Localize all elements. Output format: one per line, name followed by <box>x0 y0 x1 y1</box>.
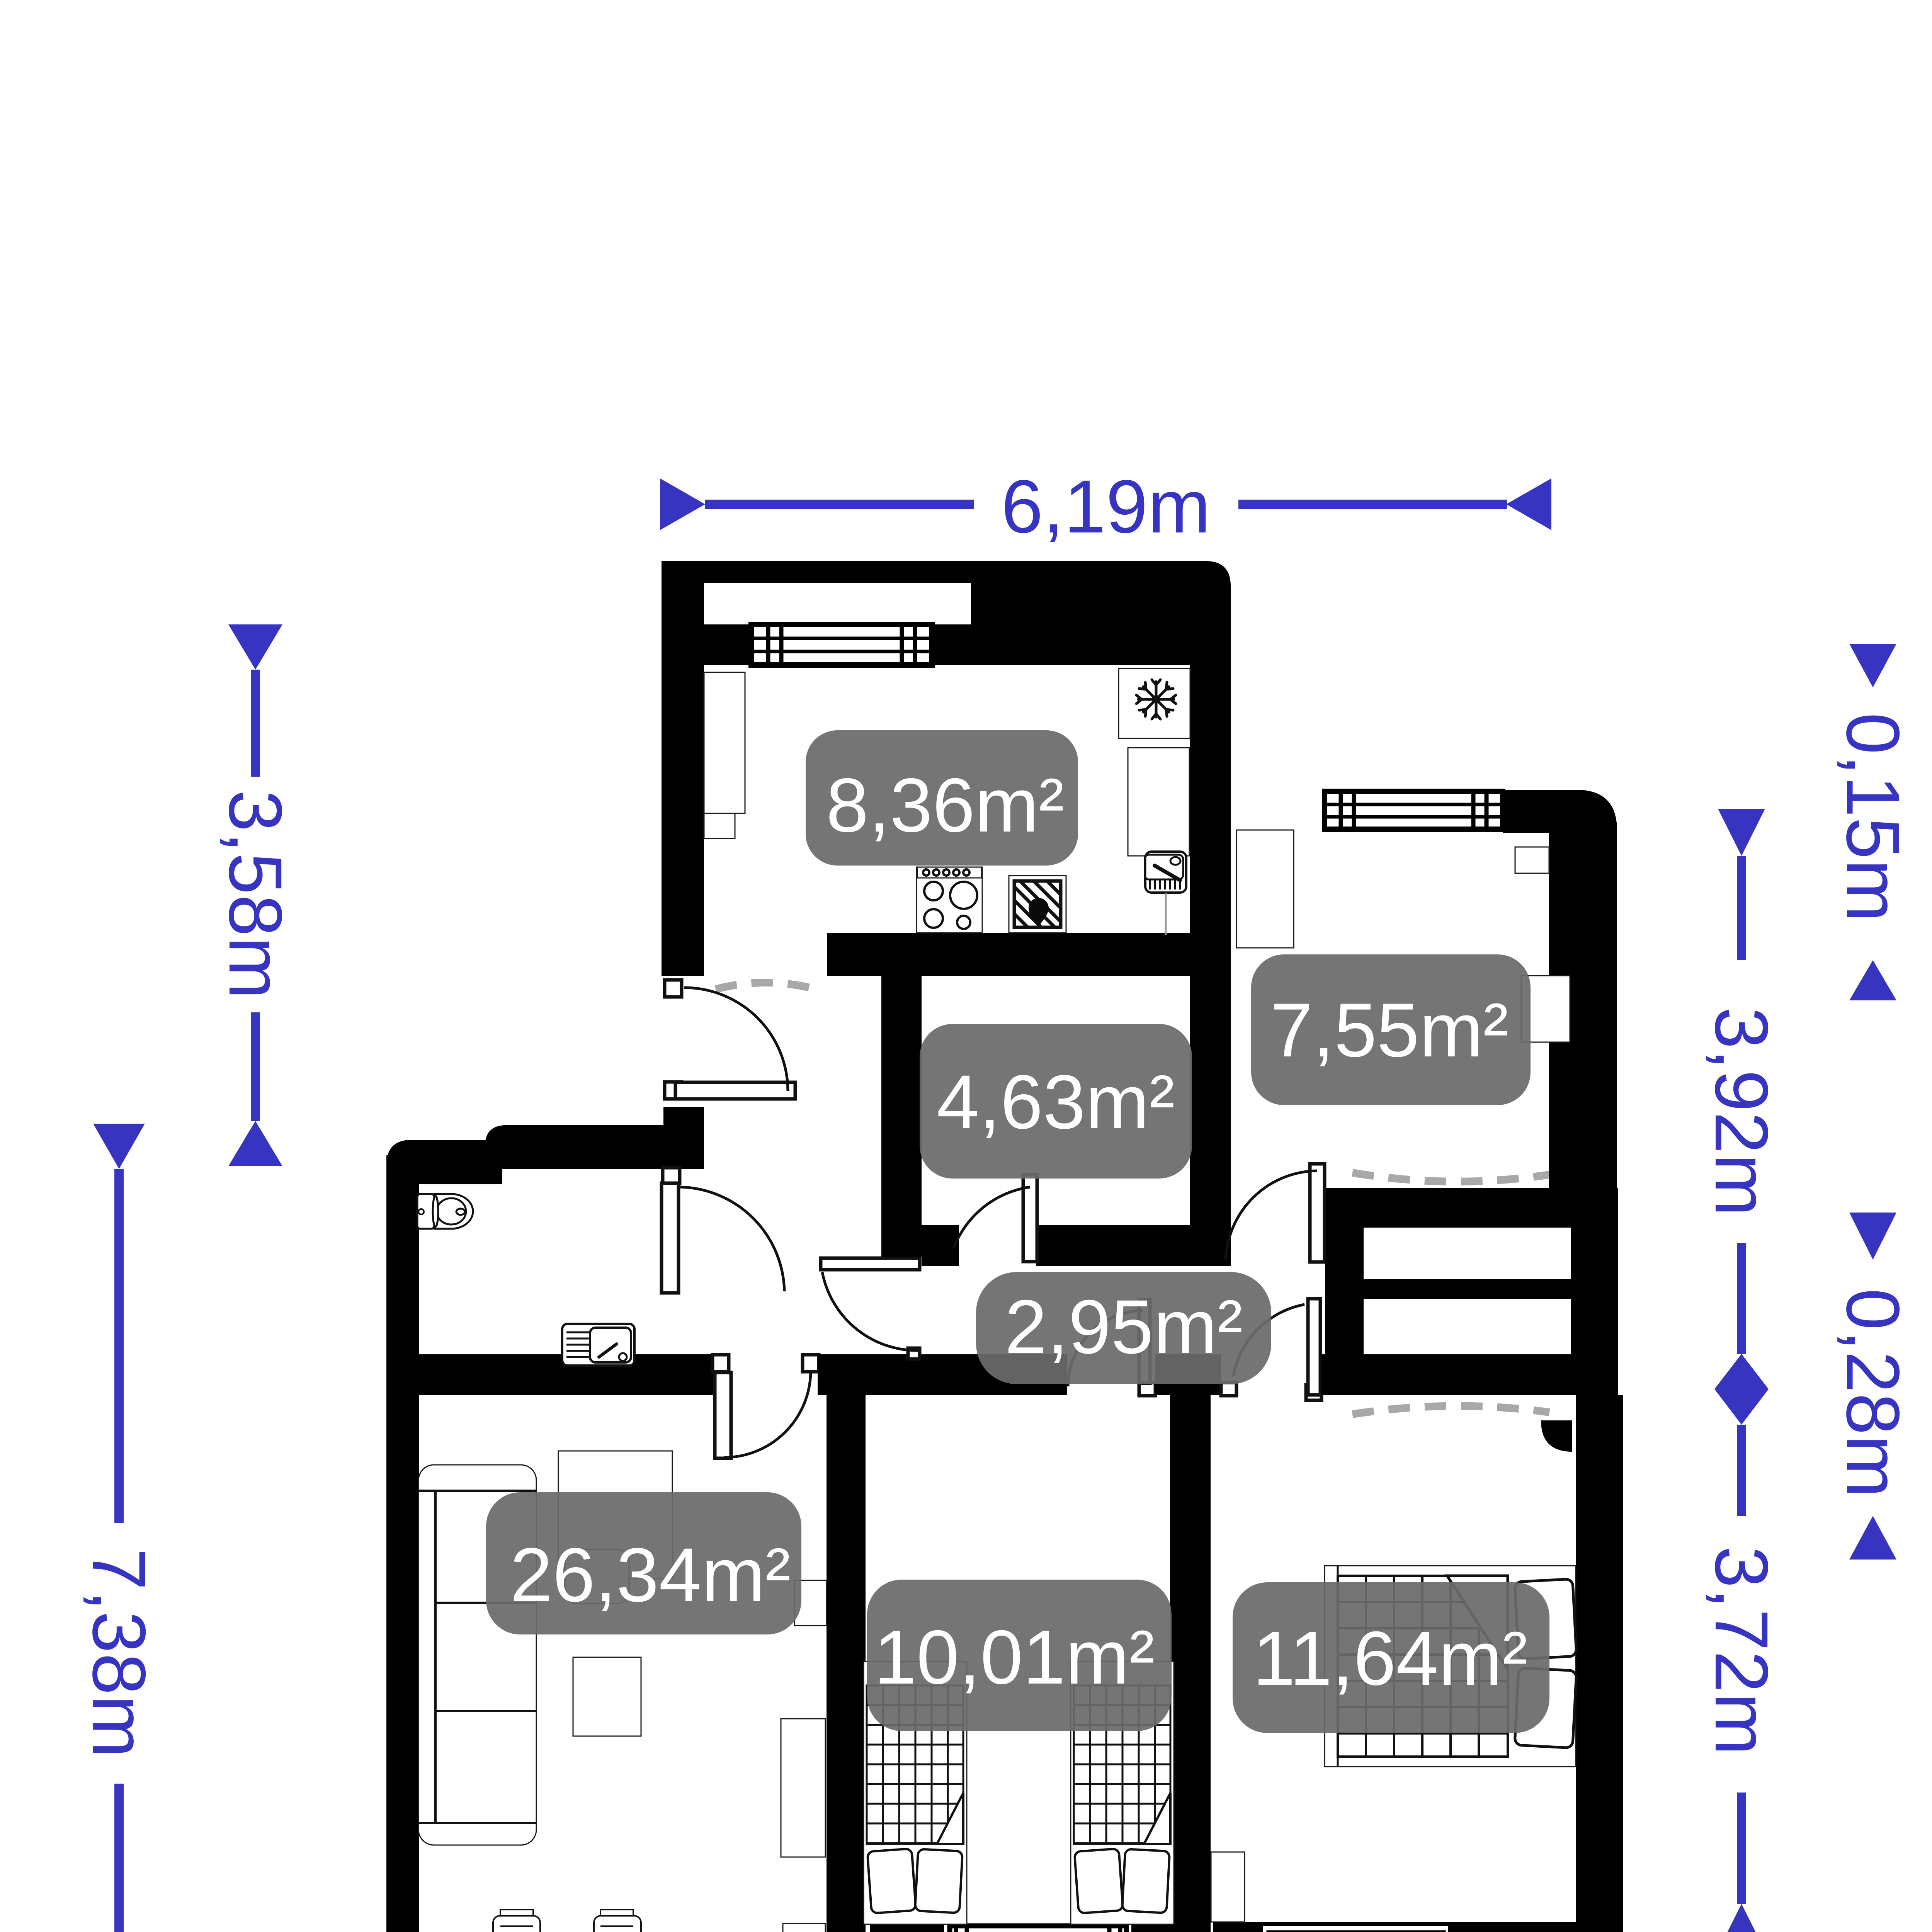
svg-text:0,15m: 0,15m <box>1831 713 1915 922</box>
svg-text:11,64m²: 11,64m² <box>1253 1616 1528 1701</box>
svg-text:3,92m: 3,92m <box>1699 1007 1784 1216</box>
svg-text:8,36m²: 8,36m² <box>826 762 1064 848</box>
svg-text:3,72m: 3,72m <box>1699 1546 1784 1755</box>
svg-text:4,63m²: 4,63m² <box>937 1059 1175 1145</box>
svg-text:2,95m²: 2,95m² <box>1005 1284 1243 1369</box>
svg-text:3,58m: 3,58m <box>213 790 298 999</box>
svg-text:6,19m: 6,19m <box>1001 464 1211 549</box>
svg-text:0,28m: 0,28m <box>1831 1288 1915 1498</box>
svg-text:10,01m²: 10,01m² <box>874 1614 1155 1700</box>
svg-text:7,38m: 7,38m <box>77 1548 161 1758</box>
svg-text:26,34m²: 26,34m² <box>510 1532 791 1617</box>
svg-text:7,55m²: 7,55m² <box>1270 987 1509 1073</box>
